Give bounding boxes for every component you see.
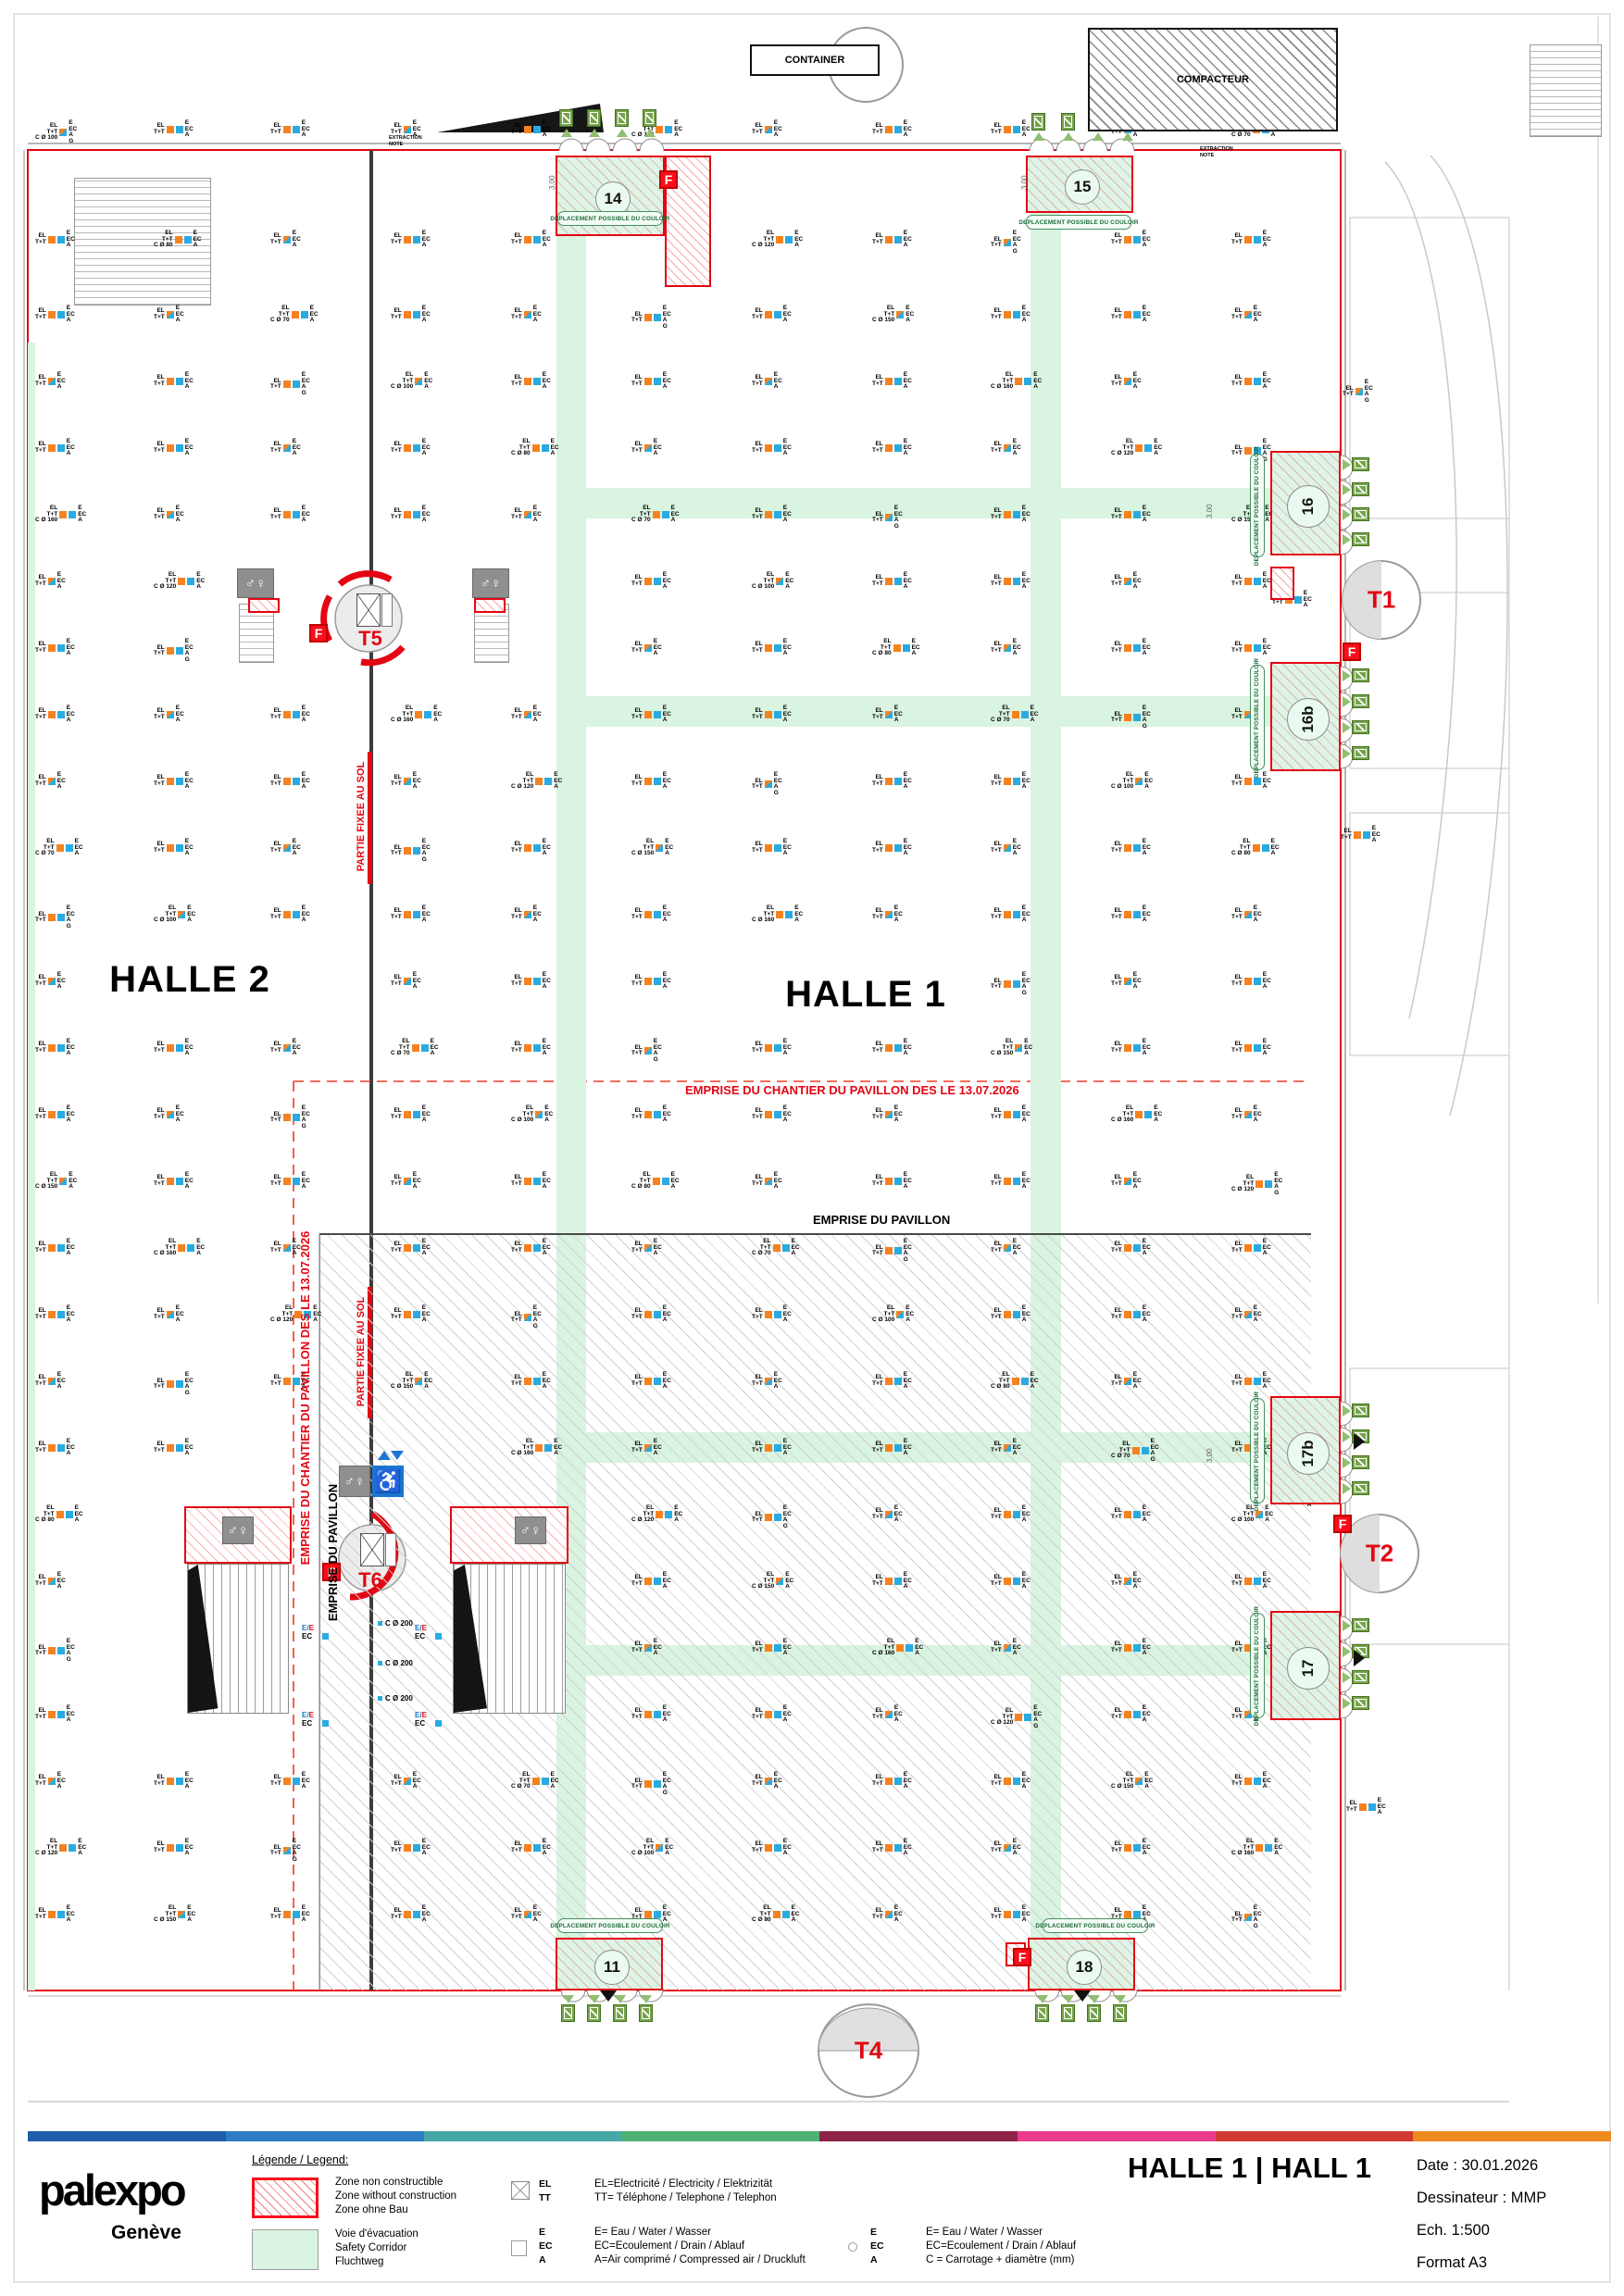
utility-marker: EL T+T C Ø 150E EC A (35, 1172, 77, 1191)
water-icon (533, 126, 541, 133)
marker-el-tt-label: EL T+T (35, 1108, 46, 1120)
electricity-icon (765, 644, 772, 652)
marker-el-tt-label: EL T+T (1111, 233, 1122, 245)
marker-e-ec-a-label: E EC A (1143, 905, 1151, 924)
gate-11: 11 (556, 1938, 663, 1990)
water-icon (894, 444, 902, 452)
electricity-icon (765, 1311, 772, 1318)
emergency-exit-icon (1352, 1481, 1369, 1495)
utility-marker: EL T+TE EC A (752, 639, 792, 657)
marker-el-tt-label: EL T+T (752, 1108, 763, 1120)
marker-el-tt-label: EL T+T (631, 908, 643, 920)
exit-runner-glyph (1355, 671, 1367, 680)
exit-runner-glyph (645, 112, 654, 124)
marker-el-tt-label: EL T+T (872, 708, 883, 720)
electricity-icon (167, 1778, 174, 1785)
marker-el-tt-label: EL T+T C Ø 70 (391, 1039, 410, 1057)
marker-e-ec-a-label: E EC A (1372, 826, 1380, 844)
utility-marker: EL T+TE EC A (631, 1239, 662, 1257)
marker-e-ec-a-label: E EC A (1263, 639, 1271, 657)
marker-e-ec-a-label: E EC A (1263, 1039, 1271, 1057)
marker-el-tt-label: EL T+T (991, 508, 1002, 520)
utility-marker: EL T+T C Ø 120E EC A G (1231, 1172, 1282, 1196)
electricity-icon (535, 1444, 543, 1452)
water-icon (1363, 831, 1370, 839)
legend-e2-line: E= Eau / Water / Wasser (926, 2226, 1076, 2240)
water-icon (1013, 778, 1020, 785)
marker-e-ec-a-label: E EC A (1263, 372, 1271, 391)
legend-e2-label: E (870, 2226, 884, 2240)
marker-e-ec-a-label: E EC A (67, 1705, 75, 1724)
water-icon (1265, 1844, 1272, 1852)
water-icon (1265, 1180, 1272, 1188)
utility-marker: EL T+TE EC A (35, 1705, 75, 1724)
utility-marker: EL T+T C Ø 80E EC A (872, 639, 920, 657)
water-icon (293, 1911, 300, 1918)
marker-el-tt-label: EL T+T (1231, 1375, 1243, 1387)
el-water-split-icon (1124, 1178, 1131, 1185)
escalator-wedge (454, 1565, 565, 1713)
marker-e-ec-a-label: E EC A (1143, 306, 1151, 324)
utility-marker: EL T+TE EC A (391, 306, 431, 324)
utility-marker: EL T+TE EC A (270, 1905, 310, 1924)
marker-e-ec-a-label: E EC A (424, 1372, 432, 1391)
direction-arrow-down (391, 1451, 404, 1460)
utility-marker: EL T+TE EC A (991, 639, 1021, 657)
marker-el-tt-label: EL T+T (391, 775, 402, 787)
marker-el-tt-label: EL T+T (35, 375, 46, 387)
el-water-split-icon (404, 778, 411, 785)
legend-ec2-label: EC (870, 2240, 884, 2253)
marker-el-tt-label: EL T+T (35, 1775, 46, 1787)
water-icon (774, 1444, 781, 1452)
marker-el-tt-label: EL T+T (511, 908, 522, 920)
water-icon (1133, 1044, 1141, 1052)
electricity-icon (404, 911, 411, 918)
marker-el-tt-label: EL T+T (1111, 1042, 1122, 1054)
water-icon (654, 978, 661, 985)
electricity-icon (167, 378, 174, 385)
utility-marker: EL T+TE EC A (270, 231, 301, 249)
utility-marker: EL T+TE EC A G (270, 1105, 310, 1129)
water-icon (1133, 644, 1141, 652)
marker-e-ec-a-label: E EC A (176, 705, 184, 724)
utility-marker: EL T+T C Ø 150E EC A (872, 306, 914, 324)
electricity-icon (404, 444, 411, 452)
zone-non-constructible (474, 598, 506, 613)
marker-e-ec-a-label: E EC A (1022, 1772, 1031, 1791)
marker-el-tt-label: EL T+T (1111, 712, 1122, 724)
el-water-split-icon (885, 711, 893, 718)
water-icon (533, 1178, 541, 1185)
marker-el-tt-label: EL T+T (631, 708, 643, 720)
label-pavillon: EMPRISE DU PAVILLON (813, 1213, 950, 1227)
marker-el-tt-label: EL T+T C Ø 80 (872, 639, 892, 657)
marker-el-tt-label: EL T+T (872, 442, 883, 454)
utility-marker: EL T+TE EC A (1231, 1105, 1262, 1124)
utility-marker: EL T+T C Ø 160E EC A (872, 1639, 923, 1657)
electricity-icon (1004, 126, 1011, 133)
electricity-icon (1124, 1711, 1131, 1718)
el-water-split-icon (48, 378, 56, 385)
marker-e-ec-a-label: E EC A (904, 1039, 912, 1057)
marker-e-ec-a-label: E EC A (1022, 1572, 1031, 1591)
utility-marker: EL T+TE EC A (154, 1105, 184, 1124)
electricity-icon (1004, 1911, 1011, 1918)
marker-el-tt-label: EL T+T (872, 1245, 883, 1257)
utility-marker: EL T+TE EC A (631, 772, 671, 791)
marker-e-ec-a-label: E EC A (1013, 1239, 1021, 1257)
utility-marker: EL T+T C Ø 100E EC A (391, 372, 432, 391)
marker-e-ec-a-label: E EC A (654, 1239, 662, 1257)
utility-marker: EL T+TE EC A (391, 972, 421, 991)
direction-arrow-down (600, 1990, 617, 2002)
marker-el-tt-label: EL T+T (270, 708, 281, 720)
marker-e-ec-a-label: E EC A (1143, 1305, 1151, 1324)
exit-runner-glyph (1355, 1621, 1367, 1629)
water-icon (774, 844, 781, 852)
marker-el-tt-label: EL T+T (1111, 1641, 1122, 1653)
utility-marker: EL T+T C Ø 120E EC A (1111, 439, 1162, 457)
marker-el-tt-label: EL T+T (872, 1441, 883, 1454)
compacteur-box: COMPACTEUR (1088, 28, 1338, 131)
utility-marker: EL T+TE EC A (991, 572, 1031, 591)
marker-el-tt-label: EL T+T (511, 1175, 522, 1187)
exit-runner-glyph (616, 2007, 624, 2019)
el-water-split-icon (765, 1778, 772, 1785)
water-icon (66, 844, 73, 852)
label-extraction: EXTRACTION NOTE (1200, 146, 1233, 158)
electricity-icon (167, 126, 174, 133)
marker-el-tt-label: EL T+T (154, 375, 165, 387)
e-ec-pair-label: E/EEC (415, 1711, 427, 1728)
electricity-icon (773, 1911, 781, 1918)
marker-el-tt-label: EL T+T (154, 442, 165, 454)
utility-marker: EL T+TE EC A (391, 1105, 431, 1124)
marker-e-ec-a-label: E EC A (1143, 1239, 1151, 1257)
marker-el-tt-label: EL T+T (391, 1242, 402, 1254)
gate-18: 18 (1028, 1938, 1135, 1990)
direction-arrow-down (1037, 1995, 1048, 2003)
escalator-wedge (188, 1565, 288, 1713)
el-water-split-icon (644, 644, 652, 652)
emergency-exit-icon (1352, 482, 1369, 496)
electricity-icon (776, 236, 783, 243)
brand-bar-segment (226, 2131, 424, 2141)
exit-runner-glyph (1355, 510, 1367, 518)
marker-e-ec-a-label: E EC A (1022, 1305, 1031, 1324)
marker-e-ec-a-label: E EC A (57, 372, 66, 391)
utility-marker: EL T+TE EC A (511, 1039, 551, 1057)
utility-marker: EL T+TE EC A (872, 1839, 912, 1857)
water-icon (782, 1244, 790, 1252)
marker-el-tt-label: EL T+T (35, 1575, 46, 1587)
exit-runner-glyph (1355, 1699, 1367, 1707)
electricity-icon (48, 1444, 56, 1452)
utility-marker: EL T+TE EC A (35, 1239, 75, 1257)
el-water-split-icon (404, 978, 411, 985)
marker-e-ec-a-label: E EC A (904, 772, 912, 791)
marker-e-ec-a-label: E EC A (1143, 1839, 1151, 1857)
marker-el-tt-label: EL T+T (1346, 1801, 1357, 1813)
el-water-split-icon (1244, 1914, 1252, 1921)
water-icon (57, 1647, 65, 1654)
electricity-icon (1135, 444, 1143, 452)
el-water-split-icon (178, 911, 185, 918)
marker-e-ec-a-label: E EC A (302, 705, 310, 724)
water-icon (903, 644, 910, 652)
electricity-icon (644, 314, 652, 321)
marker-e-ec-a-label: E EC A (904, 1572, 912, 1591)
palexpo-logo-city: Genève (111, 2222, 181, 2244)
electricity-icon (283, 1911, 291, 1918)
marker-el-tt-label: EL T+T (991, 908, 1002, 920)
marker-e-ec-a-label: E EC A (533, 905, 542, 924)
water-icon (413, 911, 420, 918)
direction-arrow-up (1093, 132, 1104, 141)
utility-marker: EL T+TE EC A (154, 1305, 184, 1324)
electricity-icon (1132, 1447, 1140, 1454)
emergency-exit-icon (1352, 507, 1369, 521)
utility-marker: EL T+T C Ø 120E EC A (631, 1505, 682, 1524)
marker-e-ec-a-label: E EC A (785, 572, 793, 591)
utility-marker: EL T+TE EC A (511, 905, 542, 924)
marker-e-ec-a-label: E EC A (196, 1239, 205, 1257)
marker-el-tt-label: EL T+T (752, 1641, 763, 1653)
water-icon (533, 1244, 541, 1252)
marker-el-tt-label: EL T+T (511, 308, 522, 320)
utility-marker: EL T+TE EC A (511, 372, 551, 391)
ec-black: EC (302, 1632, 312, 1641)
legend-tt-line: TT= Téléphone / Telephone / Telephon (594, 2191, 777, 2205)
electricity-icon (885, 236, 893, 243)
water-icon (1254, 578, 1261, 585)
utility-marker: EL T+TE EC A (991, 1905, 1031, 1924)
utility-marker: EL T+T C Ø 150E EC A (391, 1372, 432, 1391)
water-icon (322, 1633, 329, 1640)
pill-label: DEPLACEMENT POSSIBLE DU COULOIR (550, 1923, 669, 1929)
water-icon (544, 778, 552, 785)
marker-el-tt-label: EL T+T (1231, 1708, 1243, 1720)
water-icon (1254, 644, 1261, 652)
marker-e-ec-a-label: E EC A G (1365, 380, 1373, 404)
e-blue: E/ (415, 1711, 422, 1719)
marker-e-ec-a-label: E EC A (57, 572, 66, 591)
water-icon (1254, 1578, 1261, 1585)
emergency-exit-icon (1352, 457, 1369, 471)
utility-marker: EL T+T C Ø 120E EC A (154, 572, 205, 591)
marker-e-ec-a-label: E EC A (783, 1639, 792, 1657)
el-water-split-icon (765, 126, 772, 133)
el-water-split-icon (776, 578, 783, 585)
utility-marker: EL T+TE EC A (872, 1439, 912, 1457)
legend-corridor-text: Voie d'évacuation Safety Corridor Flucht… (335, 2227, 418, 2269)
water-icon (654, 1378, 661, 1385)
marker-el-tt-label: EL T+T (154, 645, 165, 657)
el-water-split-icon (167, 711, 174, 718)
water-icon (662, 511, 669, 518)
marker-e-ec-a-label: E EC A (1022, 306, 1031, 324)
emergency-exit-icon (639, 2004, 653, 2022)
water-dot-icon (378, 1696, 382, 1701)
utility-marker: EL T+TE EC A (1231, 1772, 1271, 1791)
water-icon (894, 1247, 902, 1254)
electricity-icon (644, 1578, 652, 1585)
electricity-icon (1124, 1844, 1131, 1852)
utility-marker: EL T+TE EC A (1231, 306, 1262, 324)
direction-arrow-down (563, 1995, 574, 2003)
carrotage-200-label: C Ø 200 (385, 1659, 413, 1667)
marker-el-tt-label: EL T+T (1231, 1242, 1243, 1254)
utility-marker: EL T+T C Ø 70E EC A (631, 505, 680, 524)
electricity-icon (1004, 1178, 1011, 1185)
marker-e-ec-a-label: E EC A (1143, 839, 1151, 857)
corridor-relocation-pill: DEPLACEMENT POSSIBLE DU COULOIR (1250, 1613, 1265, 1718)
marker-e-ec-a-label: E EC A (67, 639, 75, 657)
water-icon (654, 711, 661, 718)
water-icon (413, 1311, 420, 1318)
marker-e-ec-a-label: E EC A (185, 120, 194, 139)
water-icon (1133, 1644, 1141, 1652)
wc-icon: ♂♀ (472, 568, 509, 598)
el-water-split-icon (404, 126, 411, 133)
water-icon (894, 1844, 902, 1852)
electricity-icon (765, 511, 772, 518)
marker-e-ec-a-label: E EC A (1143, 505, 1151, 524)
water-icon (1133, 911, 1141, 918)
marker-e-ec-a-label: E EC A (185, 839, 194, 857)
electricity-icon (765, 311, 772, 318)
direction-arrow-right (1343, 509, 1351, 520)
marker-el-tt-label: EL T+T (1111, 1508, 1122, 1520)
marker-el-tt-label: EL T+T (154, 308, 165, 320)
emergency-exit-icon (1352, 694, 1369, 708)
marker-el-tt-label: EL T+T (872, 1108, 883, 1120)
marker-el-tt-label: EL T+T (391, 1908, 402, 1920)
electricity-icon (167, 1178, 174, 1185)
marker-e-ec-a-label: E EC A (792, 1239, 800, 1257)
utility-marker: EL T+T C Ø 80E EC A (35, 1505, 83, 1524)
marker-e-ec-a-label: E EC A G (69, 120, 77, 144)
legend-corridor-line: Voie d'évacuation (335, 2227, 418, 2241)
utility-marker: EL T+TE EC A (752, 1172, 782, 1191)
marker-el-tt-label: EL T+T C Ø 150 (991, 1039, 1013, 1057)
electricity-icon (412, 1044, 419, 1052)
marker-e-ec-a-label: E EC A (67, 1239, 75, 1257)
marker-el-tt-label: EL T+T (991, 642, 1002, 654)
marker-el-tt-label: EL T+T (991, 1575, 1002, 1587)
marker-e-ec-a-label: E EC A (543, 1172, 551, 1191)
electricity-icon (524, 1244, 531, 1252)
legend-zone-line: Zone ohne Bau (335, 2203, 456, 2217)
marker-e-ec-a-label: E EC A (551, 1772, 559, 1791)
exit-runner-glyph (1090, 2007, 1098, 2019)
marker-el-tt-label: EL T+T (1111, 1308, 1122, 1320)
marker-e-ec-a-label: E EC A (176, 505, 184, 524)
marker-e-ec-a-label: E EC A (894, 1505, 903, 1524)
marker-e-ec-a-label: E EC A (302, 772, 310, 791)
exit-runner-glyph (590, 112, 598, 124)
marker-el-tt-label: EL T+T C Ø 120 (1231, 1175, 1254, 1193)
utility-marker: EL T+TE EC A G (752, 772, 782, 796)
marker-el-tt-label: EL T+T (35, 708, 46, 720)
utility-marker: EL T+TE EC A (752, 1839, 792, 1857)
hall-title-1: HALLE 2 (69, 959, 310, 1001)
marker-e-ec-a-label: E EC A (912, 639, 920, 657)
electricity-icon (56, 1511, 64, 1518)
water-icon (894, 844, 902, 852)
marker-e-ec-a-label: E EC A (185, 1039, 194, 1057)
electricity-icon (48, 644, 56, 652)
utility-marker: EL T+TE EC A (1346, 1798, 1386, 1816)
marker-el-tt-label: EL T+T (752, 1175, 763, 1187)
utility-marker: EL T+TE EC A (391, 231, 431, 249)
utility-marker: EL T+TE EC A (631, 439, 662, 457)
marker-e-ec-a-label: E EC A (1143, 1705, 1151, 1724)
electricity-icon (167, 1380, 174, 1388)
exit-runner-glyph (1355, 1458, 1367, 1466)
electricity-icon (1244, 978, 1252, 985)
utility-marker: EL T+TE EC A (270, 705, 310, 724)
marker-el-tt-label: EL T+T (35, 1645, 46, 1657)
water-icon (774, 511, 781, 518)
utility-marker: EL T+T C Ø 100E EC A G (35, 120, 77, 144)
el-water-split-icon (1004, 1844, 1011, 1852)
emergency-exit-icon (1352, 1404, 1369, 1417)
water-icon (176, 1778, 183, 1785)
utility-marker: EL T+TE EC A (752, 1039, 792, 1057)
utility-marker: EL T+T C Ø 80E EC A (1231, 839, 1280, 857)
utility-marker: EL T+T C Ø 100E EC A (872, 1305, 914, 1324)
gate-number: 16 (1287, 485, 1330, 528)
marker-el-tt-label: EL T+T (631, 575, 643, 587)
water-icon (187, 578, 194, 585)
marker-e-ec-a-label: E EC A (1133, 572, 1142, 591)
brand-bar-segment (424, 2131, 622, 2141)
marker-el-tt-label: EL T+T (511, 708, 522, 720)
marker-el-tt-label: EL T+T (511, 1375, 522, 1387)
electricity-icon (1244, 1578, 1252, 1585)
electricity-icon (1244, 778, 1252, 785)
electricity-icon (885, 1247, 893, 1254)
corridor-relocation-pill: DEPLACEMENT POSSIBLE DU COULOIR (1250, 1398, 1265, 1504)
electricity-icon (283, 1178, 291, 1185)
water-icon (1021, 1378, 1029, 1385)
electricity-icon (283, 711, 291, 718)
water-icon (1021, 711, 1029, 718)
electricity-icon (765, 711, 772, 718)
marker-el-tt-label: EL T+T C Ø 160 (991, 372, 1013, 391)
marker-e-ec-a-label: E EC A (554, 1439, 562, 1457)
utility-marker: EL T+TE EC A (872, 1172, 912, 1191)
marker-e-ec-a-label: E EC A (413, 972, 421, 991)
water-icon (1133, 844, 1141, 852)
electricity-icon (896, 1644, 904, 1652)
utility-marker: EL T+TE EC A (991, 1839, 1021, 1857)
utility-marker: EL T+TE EC A (511, 1172, 551, 1191)
electricity-icon (59, 1844, 67, 1852)
utility-marker: EL T+TE EC A (1111, 1572, 1142, 1591)
water-icon (1013, 980, 1020, 988)
water-icon (774, 1044, 781, 1052)
marker-el-tt-label: EL T+T (270, 508, 281, 520)
electricity-icon (48, 1911, 56, 1918)
utility-marker: EL T+TE EC A (35, 231, 75, 249)
water-icon (774, 644, 781, 652)
marker-e-ec-a-label: E EC A (57, 1772, 66, 1791)
water-icon (894, 126, 902, 133)
marker-el-tt-label: EL T+T (1111, 842, 1122, 854)
